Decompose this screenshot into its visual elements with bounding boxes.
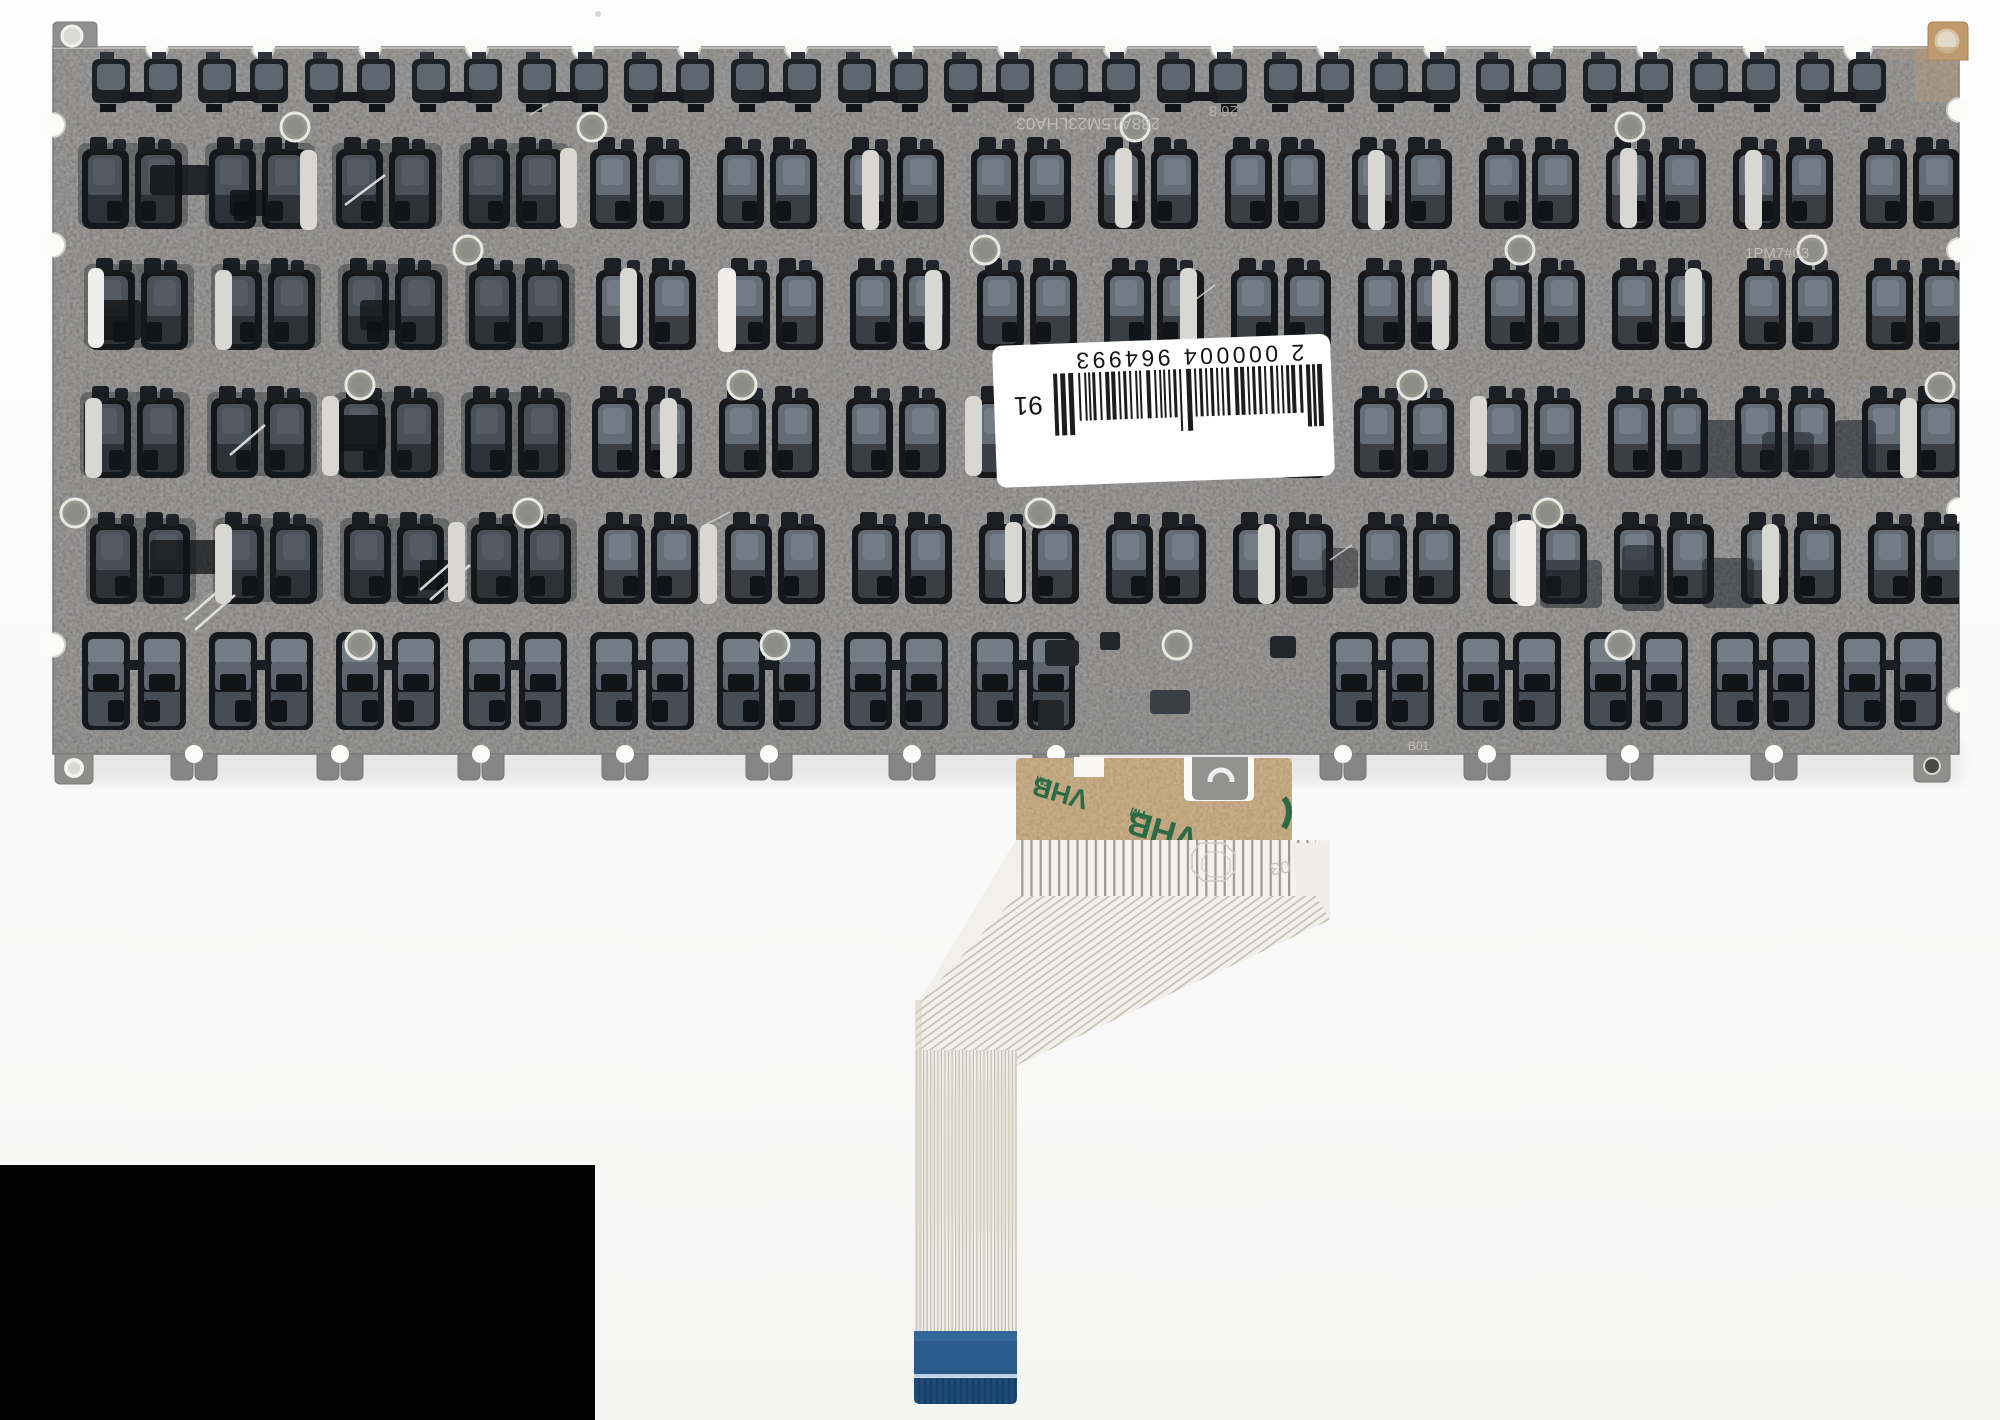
svg-text:B01: B01 — [1408, 739, 1430, 753]
svg-text:03: 03 — [1269, 856, 1292, 879]
svg-text:288A15M23LHA03: 288A15M23LHA03 — [1016, 114, 1160, 133]
svg-text:1PM7#03: 1PM7#03 — [1745, 245, 1809, 262]
svg-text:91: 91 — [1013, 390, 1043, 421]
svg-text:26 8: 26 8 — [1209, 102, 1238, 119]
